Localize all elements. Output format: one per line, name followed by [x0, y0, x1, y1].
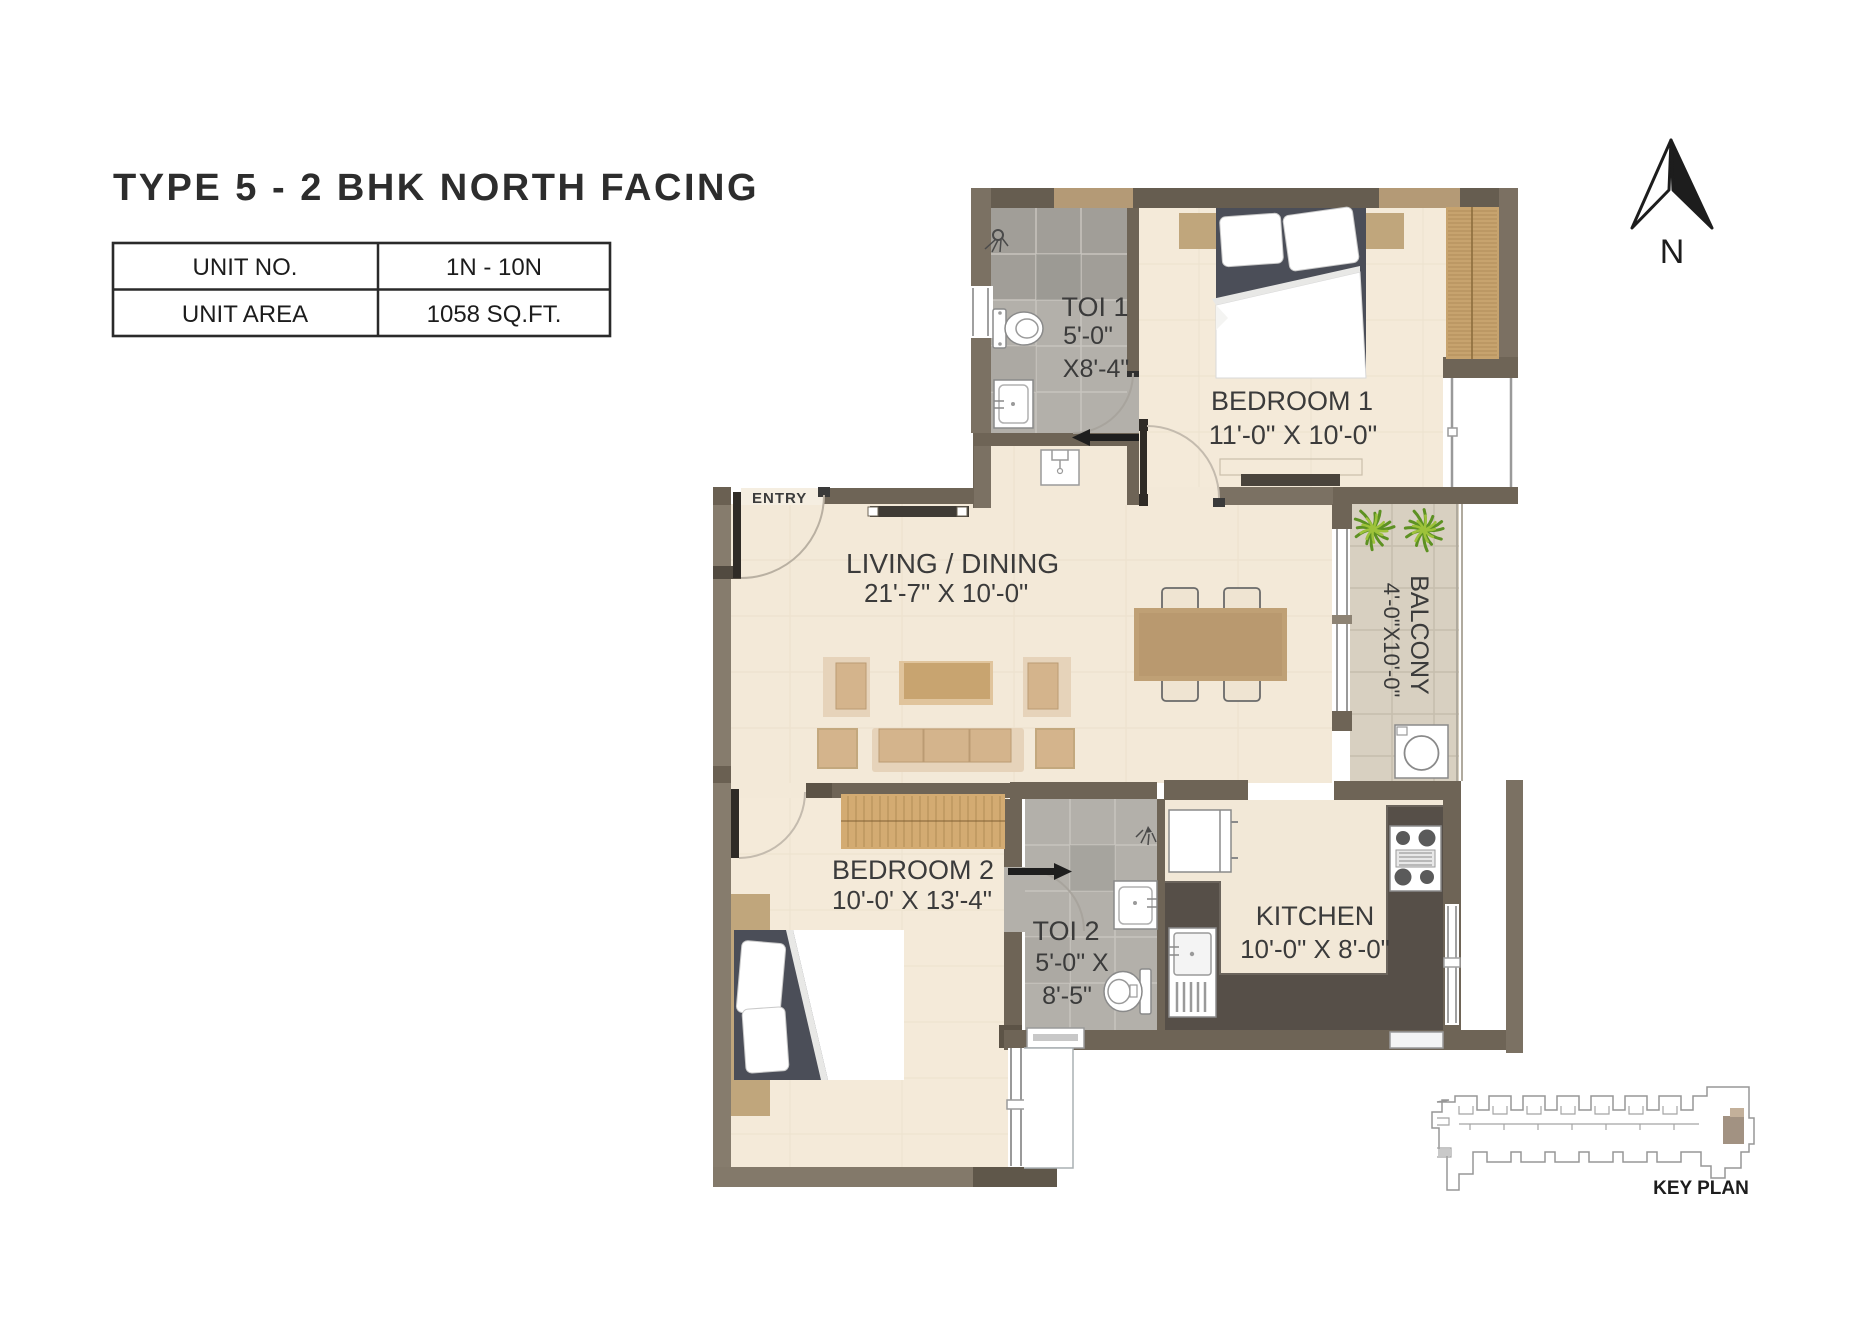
svg-text:10'-0' X 13'-4": 10'-0' X 13'-4" — [832, 885, 992, 915]
svg-text:N: N — [1660, 233, 1685, 271]
svg-text:UNIT AREA: UNIT AREA — [182, 301, 308, 328]
svg-text:BEDROOM 1: BEDROOM 1 — [1211, 386, 1373, 416]
svg-text:BEDROOM 2: BEDROOM 2 — [832, 855, 994, 885]
svg-text:KEY PLAN: KEY PLAN — [1653, 1178, 1749, 1199]
svg-text:TOI 1: TOI 1 — [1061, 292, 1128, 322]
svg-text:4'-0"X10'-0": 4'-0"X10'-0" — [1379, 583, 1404, 698]
svg-text:11'-0" X 10'-0": 11'-0" X 10'-0" — [1209, 420, 1378, 450]
svg-text:8'-5": 8'-5" — [1042, 982, 1092, 1010]
svg-text:5'-0": 5'-0" — [1063, 322, 1113, 350]
svg-text:21'-7" X 10'-0": 21'-7" X 10'-0" — [864, 578, 1028, 608]
svg-text:ENTRY: ENTRY — [752, 490, 807, 507]
svg-text:10'-0" X 8'-0": 10'-0" X 8'-0" — [1240, 934, 1390, 964]
svg-text:KITCHEN: KITCHEN — [1256, 901, 1375, 931]
svg-text:TYPE 5 - 2 BHK NORTH FACING: TYPE 5 - 2 BHK NORTH FACING — [113, 167, 759, 209]
svg-text:UNIT NO.: UNIT NO. — [193, 254, 298, 281]
svg-text:1N - 10N: 1N - 10N — [446, 254, 542, 281]
svg-text:1058 SQ.FT.: 1058 SQ.FT. — [427, 301, 562, 328]
svg-text:5'-0" X: 5'-0" X — [1035, 949, 1109, 977]
svg-text:X8'-4": X8'-4" — [1063, 355, 1129, 383]
svg-text:BALCONY: BALCONY — [1405, 575, 1433, 695]
svg-text:LIVING / DINING: LIVING / DINING — [846, 548, 1059, 579]
svg-text:TOI 2: TOI 2 — [1032, 916, 1099, 946]
